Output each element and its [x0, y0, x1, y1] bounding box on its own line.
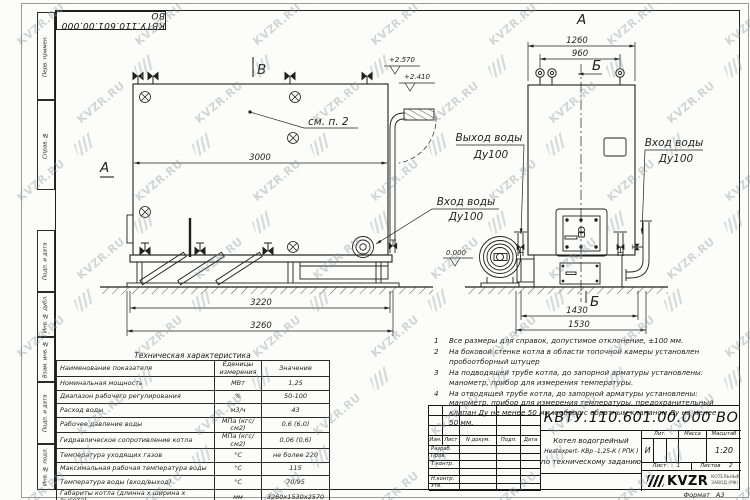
crosshair-icon: [290, 92, 301, 103]
kvzr-logo-icon: [646, 475, 665, 487]
note-text: На боковой стенке котла в области топочн…: [449, 347, 724, 366]
view-mark-A: А: [576, 12, 586, 28]
product-name: Котел водогрейный Heatexpert- КВр -1,25-…: [541, 431, 642, 473]
note-number: 3: [434, 368, 449, 387]
sheet-label: Лист: [652, 464, 666, 470]
tech-table-header-row: Наименование показателя Еденицы измерени…: [57, 361, 330, 377]
callout-see-note-2: см. п. 2: [308, 116, 349, 128]
side-inlet-dn: Ду100: [448, 211, 484, 223]
dim-3000: 3000: [249, 153, 271, 163]
tech-col-value: Значение: [262, 361, 330, 377]
crosshair-icon: [140, 92, 151, 103]
valve-icon: [536, 69, 544, 85]
blower-fan: [480, 237, 535, 288]
section-mark-A: А: [99, 160, 109, 176]
signature-row: Утв.: [429, 484, 540, 492]
title-block: Изм. Лист N докум. Подп. Дата Разраб. Пр…: [428, 405, 740, 490]
side-inlet-label: Вход воды: [437, 196, 496, 208]
product-name-line2: Heatexpert- КВр -1,25-К ( РПК ): [544, 447, 638, 457]
note-text: На подводящей трубе котла, до запорной а…: [449, 368, 724, 387]
valve-icon: [133, 72, 144, 85]
elevation-2570: +2.570: [389, 56, 415, 64]
scale-value: 1:20: [707, 439, 741, 462]
kvzr-logo-subtext: КОТЕЛЬНЫЙ ЗАВОД (РФ): [711, 475, 740, 486]
front-view-annotations: А 1260 960 Б Б 1430 1530 0.000 Выход вод…: [443, 12, 703, 334]
side-diagonal-braces: [140, 252, 262, 285]
note-item: 2На боковой стенке котла в области топоч…: [434, 347, 724, 366]
dim-960: 960: [572, 49, 588, 59]
mass-cell: [679, 439, 707, 462]
valve-icon: [263, 243, 274, 256]
side-right-pipe: [390, 109, 436, 253]
sheets-value: 2: [729, 464, 733, 470]
note-number: 1: [434, 336, 449, 346]
crosshair-icon: [140, 207, 151, 218]
front-view: [465, 64, 668, 302]
table-row: Максимальная рабочая температура воды°С1…: [57, 462, 330, 476]
side-inlet-flange: [353, 237, 374, 258]
front-boiler-body: [528, 85, 635, 255]
ash-box: [534, 255, 622, 287]
tech-col-name: Наименование показателя: [57, 361, 215, 377]
inlet-elbow-pipe: [626, 221, 652, 281]
valve-icon: [616, 69, 624, 85]
title-block-right: КВТУ.110.601.00.000 ВО Котел водогрейный…: [541, 406, 741, 491]
table-row: Рабочее давление водыМПа (кгс/см2)0,6 (6…: [57, 417, 330, 433]
side-boiler-body: [133, 84, 388, 255]
empty-cell: [541, 473, 642, 491]
signature-row: [429, 469, 540, 477]
lit-mass-scale-values: И 1:20: [642, 439, 741, 463]
table-row: Диапазон рабочего регулирования%50-100: [57, 390, 330, 404]
tech-table-title: Техническая характеристика: [56, 351, 329, 360]
change-header-row: Изм. Лист N докум. Подп. Дата: [429, 436, 540, 446]
table-row: Температура уходящих газов°Сне более 220: [57, 449, 330, 463]
lit-value: И: [642, 439, 654, 462]
signature-row: Т.контр.: [429, 461, 540, 469]
sheets-label: Листов: [700, 464, 721, 470]
table-row: Температура воды (вход/выход)°С70/95: [57, 476, 330, 490]
product-name-line3: по техническому заданию: [541, 457, 641, 468]
tech-table: Наименование показателя Еденицы измерени…: [56, 360, 330, 500]
side-view: [100, 72, 436, 295]
view-mark-B: В: [257, 62, 266, 78]
valve-icon: [195, 243, 206, 256]
section-mark-B-top: Б: [592, 58, 601, 74]
ground-hatch: [100, 288, 433, 295]
crosshair-icon: [288, 242, 299, 253]
note-number: 2: [434, 347, 449, 366]
side-left-bracket: [127, 215, 133, 243]
signature-row: Н.контр.: [429, 476, 540, 484]
lit-mass-scale: Лит. Масса Масштаб И 1:20 Лист1 Листов2 …: [642, 431, 741, 491]
format-label: Формат А3: [664, 491, 744, 499]
sheet-value: 1: [677, 464, 681, 470]
dim-1260: 1260: [566, 36, 588, 46]
table-row: Номинальная мощностьМВт1,25: [57, 377, 330, 391]
lit-mass-scale-header: Лит. Масса Масштаб: [642, 431, 741, 439]
front-outlet-dn: Ду100: [473, 149, 509, 161]
table-row: Габариты котла (длинна х ширина х высота…: [57, 489, 330, 500]
signature-row: Пров.: [429, 454, 540, 462]
kvzr-logo-text: KVZR: [667, 474, 708, 489]
front-inlet-dn: Ду100: [658, 153, 694, 165]
side-support-legs: [137, 262, 381, 283]
note-item: 3На подводящей трубе котла, до запорной …: [434, 368, 724, 387]
elevation-2410: +2.410: [404, 73, 430, 81]
section-mark-B-bottom: Б: [590, 294, 599, 310]
signature-row: Разраб.: [429, 446, 540, 454]
table-row: Гидравлическое сопротивление котлаМПа (к…: [57, 433, 330, 449]
note-item: 1Все размеры для справок, допустимое отк…: [434, 336, 724, 346]
sheets-row: Лист1 Листов2: [642, 463, 741, 471]
doc-number: КВТУ.110.601.00.000 ВО: [541, 406, 741, 431]
valve-icon: [148, 72, 159, 85]
furnace-door: [556, 209, 607, 256]
dim-1430: 1430: [566, 306, 588, 316]
sight-glass: [604, 138, 626, 156]
company-logo: KVZR КОТЕЛЬНЫЙ ЗАВОД (РФ): [642, 471, 741, 491]
elevation-zero: 0.000: [446, 249, 467, 257]
front-outlet-label: Выход воды: [456, 132, 523, 144]
table-row: Расход водым3/ч43: [57, 404, 330, 418]
change-row: [429, 416, 540, 426]
dim-3260: 3260: [250, 321, 272, 331]
note-text: Все размеры для справок, допустимое откл…: [449, 336, 683, 346]
valve-icon: [285, 72, 296, 85]
valve-icon: [362, 72, 373, 85]
tech-col-units: Еденицы измерения: [215, 361, 262, 377]
change-row: [429, 426, 540, 436]
dim-3220: 3220: [250, 298, 272, 308]
valve-icon: [548, 69, 556, 85]
front-inlet-label: Вход воды: [645, 137, 704, 149]
ground-hatch: [465, 288, 668, 295]
change-row: [429, 406, 540, 416]
lit-cells: И: [642, 439, 679, 462]
valve-icon: [140, 243, 151, 256]
product-name-line1: Котел водогрейный: [553, 436, 628, 447]
title-block-left: Изм. Лист N докум. Подп. Дата Разраб. Пр…: [429, 406, 541, 491]
crosshair-icon: [288, 133, 299, 144]
side-channel-box: [300, 262, 388, 279]
drawing-sheet: КВТУ.110.601.00.000 ВО Перв. примен. Спр…: [0, 0, 750, 500]
dim-1530: 1530: [568, 320, 590, 330]
